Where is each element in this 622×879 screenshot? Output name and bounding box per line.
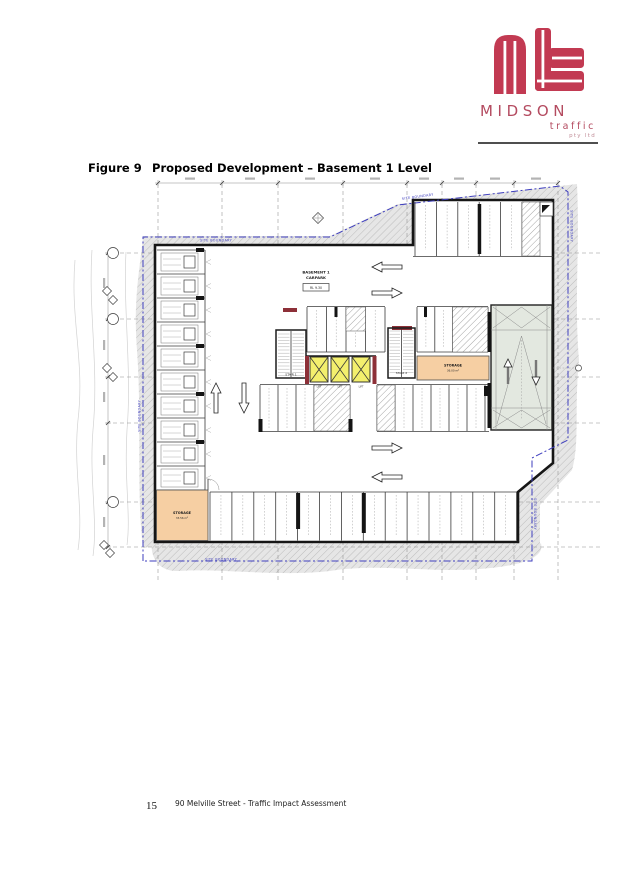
stair-2-label: STAIR 2 (396, 371, 407, 375)
site-boundary-label: SITE BOUNDARY (205, 558, 238, 562)
site-boundary-label: SITE BOUNDARY (138, 399, 142, 432)
lift-label: LIFT (317, 386, 322, 389)
storage-area: 33.56 m² (176, 516, 188, 520)
document-page: MIDSON traffic pty ltd Figure 9 Proposed… (0, 0, 622, 879)
level-tag: RL 9.30 (310, 286, 322, 290)
storage-label: STORAGE (173, 511, 192, 515)
lift-label: LIFT (338, 386, 343, 389)
carpark-line2: CARPARK (306, 275, 327, 280)
stair-1-label: STAIR 1 (285, 373, 296, 377)
site-boundary-label: SITE BOUNDARY (533, 498, 537, 531)
floor-plan-drawing: SITE BOUNDARY SITE BOUNDARY SITE BOUNDAR… (0, 0, 622, 879)
storage-area: 36.00 m² (447, 369, 459, 373)
lift-label: LIFT (359, 386, 364, 389)
site-boundary-label: SITE BOUNDARY (200, 239, 233, 243)
site-boundary-label: SITE BOUNDARY (570, 210, 574, 243)
page-number: 15 (146, 800, 157, 812)
footer-doc-title: 90 Melville Street - Traffic Impact Asse… (175, 799, 346, 808)
storage-label: STORAGE (444, 364, 463, 368)
carpark-line1: BASEMENT 1 (302, 270, 330, 275)
